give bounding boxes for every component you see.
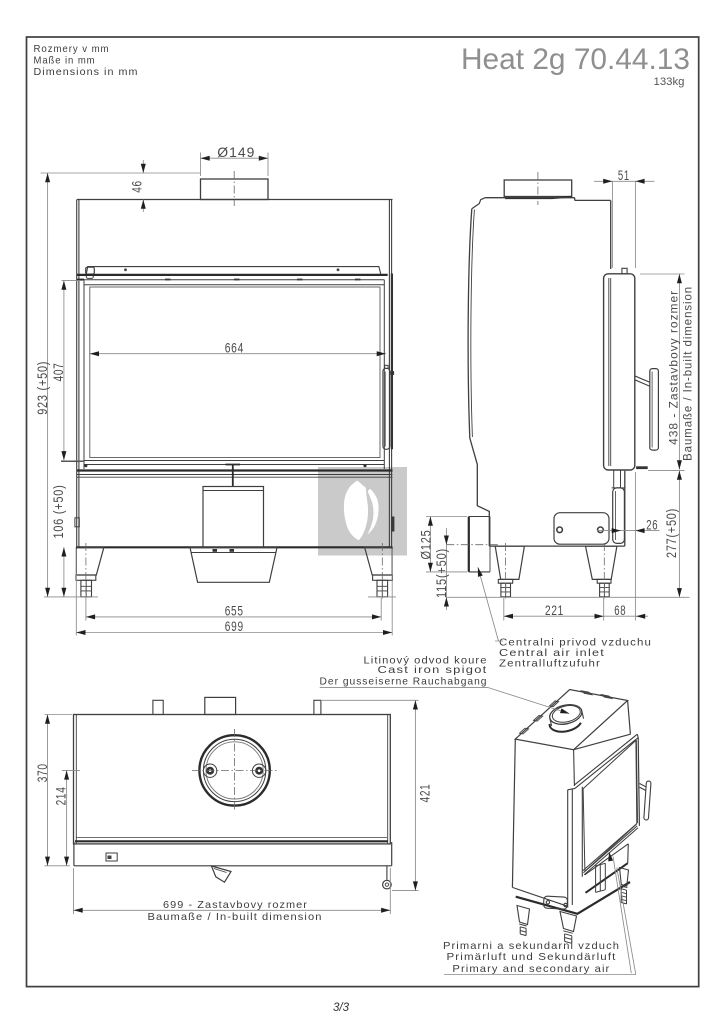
svg-text:Baumaße / In-built dimension: Baumaße / In-built dimension	[680, 286, 694, 461]
svg-text:51: 51	[618, 167, 630, 183]
svg-text:Ø125: Ø125	[418, 530, 434, 560]
svg-text:Zentralluftzufuhr: Zentralluftzufuhr	[499, 659, 601, 670]
svg-text:26: 26	[646, 516, 658, 532]
svg-text:699 - Zastavbovy rozmer: 699 - Zastavbovy rozmer	[163, 900, 308, 911]
svg-text:Der gusseiserne Rauchabgang: Der gusseiserne Rauchabgang	[320, 677, 488, 688]
svg-text:664: 664	[225, 339, 244, 355]
svg-text:Cast iron spigot: Cast iron spigot	[378, 665, 488, 676]
svg-text:Baumaße / In-built dimension: Baumaße / In-built dimension	[148, 912, 323, 923]
svg-text:221: 221	[545, 602, 564, 618]
svg-text:Dimensions in mm: Dimensions in mm	[34, 67, 139, 78]
svg-text:106 (+50): 106 (+50)	[50, 485, 66, 539]
svg-text:Primary and secondary air: Primary and secondary air	[452, 964, 610, 975]
svg-text:Centralni privod vzduchu: Centralni privod vzduchu	[499, 638, 652, 649]
svg-text:Central air inlet: Central air inlet	[499, 648, 605, 659]
svg-text:3/3: 3/3	[333, 1002, 350, 1014]
svg-text:Maße in mm: Maße in mm	[34, 56, 96, 67]
svg-text:68: 68	[614, 602, 626, 618]
svg-text:407: 407	[50, 363, 66, 382]
svg-text:133kg: 133kg	[654, 76, 685, 88]
svg-text:655: 655	[225, 603, 244, 619]
svg-text:Primärluft und Sekundärluft: Primärluft und Sekundärluft	[447, 952, 617, 963]
svg-text:Rozmery v mm: Rozmery v mm	[34, 44, 110, 55]
svg-text:Primarni a sekundarni vzduch: Primarni a sekundarni vzduch	[443, 941, 620, 952]
svg-text:699: 699	[225, 618, 244, 634]
svg-text:923 (+50): 923 (+50)	[34, 361, 50, 415]
svg-text:277(+50): 277(+50)	[663, 508, 679, 558]
svg-text:370: 370	[34, 763, 50, 782]
svg-text:214: 214	[53, 786, 69, 805]
svg-text:46: 46	[129, 180, 145, 193]
svg-text:Ø149: Ø149	[217, 144, 255, 160]
svg-text:421: 421	[416, 784, 432, 803]
svg-text:438 - Zastavbovy rozmer: 438 - Zastavbovy rozmer	[667, 290, 681, 445]
svg-text:Heat 2g 70.44.13: Heat 2g 70.44.13	[461, 43, 690, 76]
svg-text:115(+50): 115(+50)	[433, 548, 449, 598]
